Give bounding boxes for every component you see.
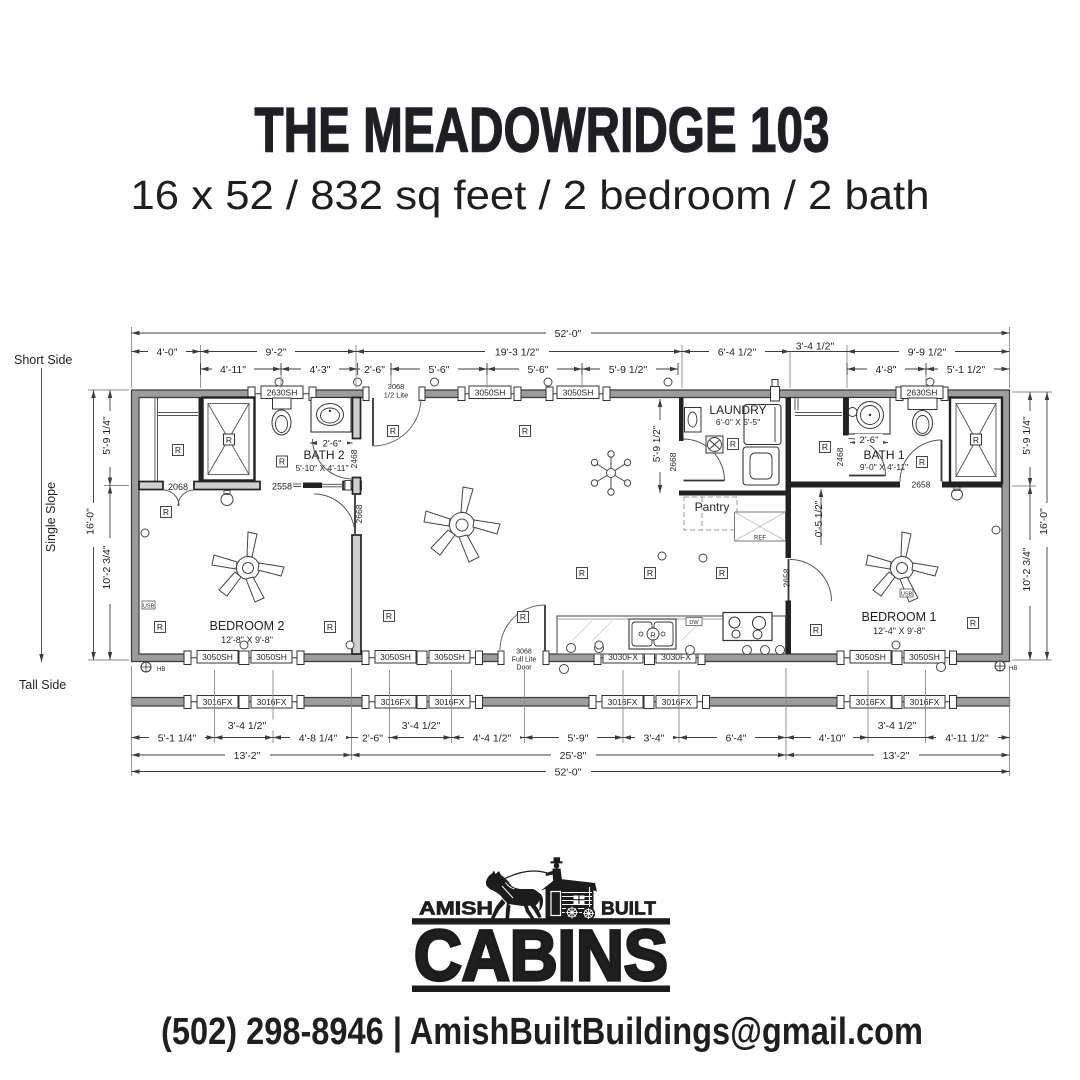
svg-text:R: R bbox=[579, 568, 585, 578]
svg-text:13'-2": 13'-2" bbox=[234, 750, 261, 762]
svg-text:3'-4 1/2": 3'-4 1/2" bbox=[402, 720, 441, 732]
svg-text:5'-9": 5'-9" bbox=[568, 733, 589, 745]
svg-text:R: R bbox=[226, 435, 232, 445]
svg-text:3050SH: 3050SH bbox=[434, 652, 465, 662]
svg-text:12'-4" X 9'-8": 12'-4" X 9'-8" bbox=[873, 626, 925, 636]
svg-text:3'-4": 3'-4" bbox=[644, 733, 665, 745]
svg-text:DW: DW bbox=[689, 620, 699, 626]
svg-text:2468: 2468 bbox=[349, 449, 359, 468]
svg-text:2630SH: 2630SH bbox=[907, 388, 938, 398]
svg-text:10'-2 3/4": 10'-2 3/4" bbox=[101, 545, 113, 590]
svg-text:Pantry: Pantry bbox=[695, 500, 730, 514]
svg-text:6'-4 1/2": 6'-4 1/2" bbox=[718, 347, 757, 359]
svg-text:3016FX: 3016FX bbox=[856, 697, 886, 707]
svg-text:REF: REF bbox=[754, 536, 766, 542]
svg-text:13'-2": 13'-2" bbox=[883, 750, 910, 762]
svg-text:HB: HB bbox=[1009, 666, 1017, 672]
svg-text:4'-8": 4'-8" bbox=[876, 364, 897, 376]
svg-text:2468: 2468 bbox=[835, 447, 845, 466]
svg-text:2068: 2068 bbox=[168, 482, 188, 492]
svg-text:52'-0": 52'-0" bbox=[555, 767, 582, 779]
svg-text:52'-0": 52'-0" bbox=[555, 328, 582, 340]
svg-text:BATH 2: BATH 2 bbox=[303, 448, 344, 462]
svg-text:R: R bbox=[647, 568, 653, 578]
svg-text:HB: HB bbox=[157, 667, 165, 673]
svg-text:R: R bbox=[157, 622, 163, 632]
svg-text:R: R bbox=[390, 426, 396, 436]
svg-text:BUILT: BUILT bbox=[601, 898, 657, 919]
svg-text:R: R bbox=[973, 435, 979, 445]
svg-text:4'-4 1/2": 4'-4 1/2" bbox=[473, 733, 512, 745]
svg-text:R: R bbox=[822, 442, 828, 452]
svg-text:USB: USB bbox=[901, 592, 913, 598]
svg-text:6'-0" X 5'-5": 6'-0" X 5'-5" bbox=[716, 417, 760, 427]
svg-text:16 x 52 / 832 sq feet / 2 bedr: 16 x 52 / 832 sq feet / 2 bedroom / 2 ba… bbox=[131, 172, 930, 218]
svg-text:R: R bbox=[327, 622, 333, 632]
svg-text:5'-1 1/4": 5'-1 1/4" bbox=[158, 733, 197, 745]
svg-text:4'-8 1/4": 4'-8 1/4" bbox=[299, 733, 338, 745]
svg-text:4'-11": 4'-11" bbox=[220, 364, 246, 376]
svg-text:3050SH: 3050SH bbox=[475, 388, 506, 398]
svg-text:R: R bbox=[163, 507, 169, 517]
svg-text:(502) 298-8946 | AmishBuiltBui: (502) 298-8946 | AmishBuiltBuildings@gma… bbox=[161, 1011, 923, 1053]
svg-text:Single Slope: Single Slope bbox=[44, 482, 58, 552]
svg-text:3016FX: 3016FX bbox=[381, 697, 411, 707]
svg-text:Short Side: Short Side bbox=[14, 353, 72, 367]
svg-text:19'-3 1/2": 19'-3 1/2" bbox=[495, 347, 540, 359]
svg-text:R: R bbox=[175, 445, 181, 455]
svg-text:25'-8": 25'-8" bbox=[560, 750, 587, 762]
svg-text:2630SH: 2630SH bbox=[267, 388, 298, 398]
svg-text:9'-2": 9'-2" bbox=[266, 347, 287, 359]
svg-text:R: R bbox=[730, 439, 736, 449]
svg-text:1/2 Lite: 1/2 Lite bbox=[384, 391, 409, 400]
svg-text:5'-6": 5'-6" bbox=[528, 364, 549, 376]
svg-text:10'-2 3/4": 10'-2 3/4" bbox=[1021, 547, 1033, 592]
svg-text:4'-3": 4'-3" bbox=[310, 364, 331, 376]
svg-text:3016FX: 3016FX bbox=[257, 697, 287, 707]
svg-text:R: R bbox=[279, 457, 285, 467]
svg-text:R: R bbox=[522, 426, 528, 436]
svg-text:R: R bbox=[520, 612, 526, 622]
svg-text:2658: 2658 bbox=[782, 568, 792, 587]
svg-text:3068: 3068 bbox=[516, 649, 532, 656]
svg-text:CABINS: CABINS bbox=[414, 917, 668, 996]
svg-text:R: R bbox=[719, 568, 725, 578]
svg-text:2'-6": 2'-6" bbox=[860, 435, 879, 446]
svg-text:Full Lite: Full Lite bbox=[512, 657, 537, 664]
svg-text:2'-6": 2'-6" bbox=[362, 733, 383, 745]
svg-text:16'-0": 16'-0" bbox=[85, 508, 97, 535]
svg-text:3016FX: 3016FX bbox=[203, 697, 233, 707]
svg-text:5'-9 1/4": 5'-9 1/4" bbox=[1021, 416, 1033, 455]
svg-text:R: R bbox=[386, 611, 392, 621]
svg-text:5'-6": 5'-6" bbox=[429, 364, 450, 376]
svg-text:3016FX: 3016FX bbox=[662, 697, 692, 707]
svg-text:3050SH: 3050SH bbox=[256, 652, 287, 662]
svg-text:2'-6": 2'-6" bbox=[364, 364, 385, 376]
svg-text:5'-9 1/4": 5'-9 1/4" bbox=[101, 416, 113, 455]
svg-text:3050SH: 3050SH bbox=[855, 652, 886, 662]
svg-text:3'-4 1/2": 3'-4 1/2" bbox=[796, 341, 835, 353]
svg-text:3'-4 1/2": 3'-4 1/2" bbox=[878, 720, 917, 732]
svg-text:0'-5 1/2": 0'-5 1/2" bbox=[814, 500, 825, 537]
svg-text:3'-4 1/2": 3'-4 1/2" bbox=[228, 720, 267, 732]
svg-text:USB: USB bbox=[143, 604, 155, 610]
svg-text:5'-9 1/2": 5'-9 1/2" bbox=[652, 425, 663, 462]
svg-text:5'-1 1/2": 5'-1 1/2" bbox=[947, 364, 986, 376]
svg-text:Tall Side: Tall Side bbox=[19, 678, 66, 692]
svg-text:BEDROOM 1: BEDROOM 1 bbox=[861, 610, 936, 624]
svg-text:9'-9 1/2": 9'-9 1/2" bbox=[908, 347, 947, 359]
svg-text:16'-0": 16'-0" bbox=[1038, 508, 1050, 535]
svg-text:3016FX: 3016FX bbox=[435, 697, 465, 707]
svg-text:3050SH: 3050SH bbox=[563, 388, 594, 398]
svg-text:6'-4": 6'-4" bbox=[726, 733, 747, 745]
svg-text:BEDROOM 2: BEDROOM 2 bbox=[209, 619, 284, 633]
svg-text:R: R bbox=[970, 618, 976, 628]
svg-text:THE MEADOWRIDGE 103: THE MEADOWRIDGE 103 bbox=[255, 96, 830, 166]
svg-text:3016FX: 3016FX bbox=[910, 697, 940, 707]
svg-text:3050SH: 3050SH bbox=[202, 652, 233, 662]
svg-text:R: R bbox=[650, 631, 656, 640]
svg-text:5'-9 1/2": 5'-9 1/2" bbox=[609, 364, 648, 376]
svg-text:AMISH: AMISH bbox=[419, 898, 493, 919]
svg-text:2558: 2558 bbox=[272, 482, 292, 492]
svg-text:R: R bbox=[919, 457, 925, 467]
svg-text:R: R bbox=[813, 625, 819, 635]
svg-text:3050SH: 3050SH bbox=[909, 652, 940, 662]
svg-text:LAUNDRY: LAUNDRY bbox=[709, 403, 766, 417]
svg-text:2668: 2668 bbox=[354, 504, 364, 523]
svg-text:4'-11 1/2": 4'-11 1/2" bbox=[945, 733, 989, 745]
svg-text:2658: 2658 bbox=[912, 480, 931, 490]
svg-text:4'-10": 4'-10" bbox=[819, 733, 846, 745]
svg-text:BATH 1: BATH 1 bbox=[863, 448, 904, 462]
svg-text:2668: 2668 bbox=[668, 452, 678, 471]
svg-text:4'-0": 4'-0" bbox=[157, 347, 178, 359]
svg-text:3050SH: 3050SH bbox=[380, 652, 411, 662]
